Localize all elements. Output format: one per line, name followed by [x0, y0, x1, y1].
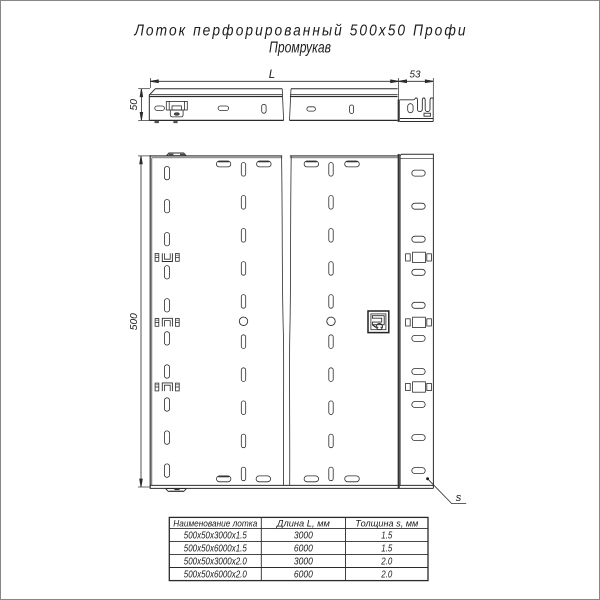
svg-text:3000: 3000 — [294, 531, 313, 542]
svg-text:1.5: 1.5 — [381, 531, 392, 542]
svg-text:Лоток перфорированный 500х50 П: Лоток перфорированный 500х50 Профи — [134, 22, 466, 40]
svg-text:6000: 6000 — [294, 570, 313, 581]
svg-text:2.0: 2.0 — [380, 570, 392, 581]
svg-text:s: s — [456, 492, 462, 504]
svg-text:500: 500 — [128, 313, 140, 330]
svg-text:2.0: 2.0 — [380, 557, 392, 568]
svg-text:Промрукав: Промрукав — [269, 39, 331, 57]
svg-text:500х50х3000х2.0: 500х50х3000х2.0 — [184, 557, 247, 568]
svg-text:53: 53 — [410, 68, 421, 80]
svg-text:Толщина s, мм: Толщина s, мм — [355, 518, 418, 529]
svg-text:50: 50 — [128, 99, 140, 111]
svg-text:L: L — [269, 69, 275, 81]
svg-text:3000: 3000 — [294, 557, 313, 568]
svg-text:500х50х3000х1.5: 500х50х3000х1.5 — [184, 531, 247, 542]
svg-text:Наименование лотка: Наименование лотка — [173, 518, 257, 529]
svg-text:6000: 6000 — [294, 544, 313, 555]
svg-text:1.5: 1.5 — [381, 544, 392, 555]
svg-text:Длина L, мм: Длина L, мм — [276, 518, 330, 529]
svg-text:500х50х6000х1.5: 500х50х6000х1.5 — [184, 544, 247, 555]
svg-text:500х50х6000х2.0: 500х50х6000х2.0 — [184, 570, 247, 581]
